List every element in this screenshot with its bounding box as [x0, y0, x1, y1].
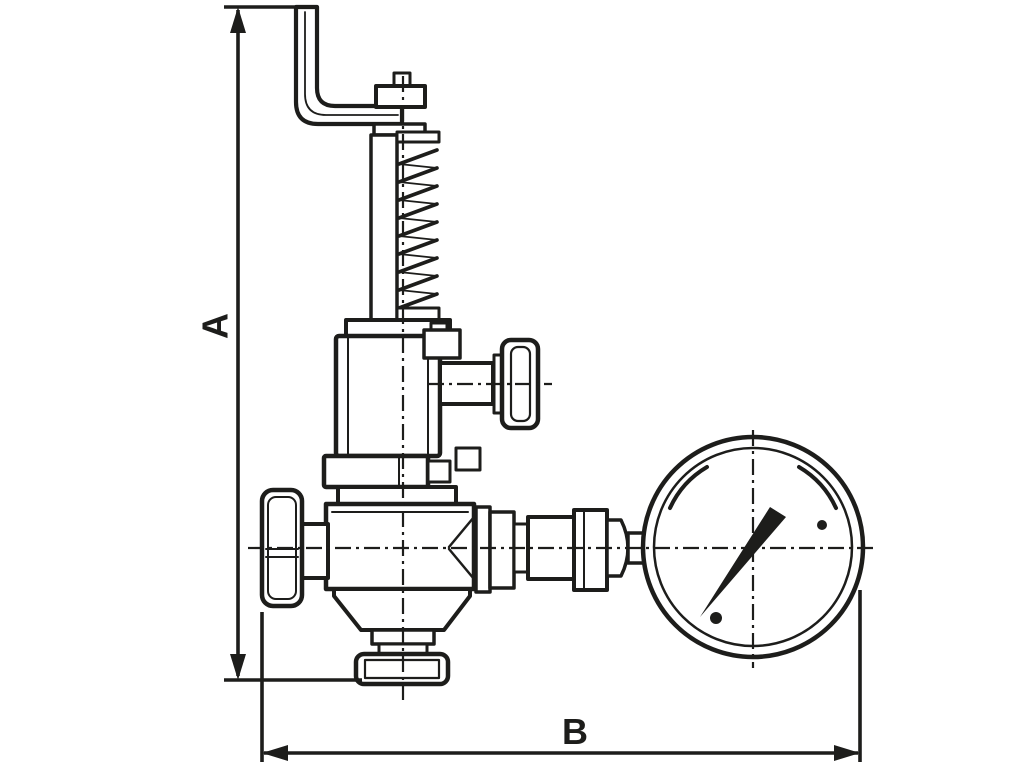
adjusting-screw-cap: [376, 86, 425, 107]
bonnet-boss: [424, 330, 460, 358]
flange-side-step: [456, 448, 480, 470]
body-block: [326, 504, 474, 589]
union-nut: [574, 510, 607, 590]
fitting-ring: [490, 512, 514, 588]
dim-a-arrow-up: [230, 7, 246, 33]
flange-right-step: [428, 461, 450, 482]
dim-b-arrow-right: [834, 745, 860, 761]
bent-lever-arm: [296, 7, 425, 135]
technical-drawing: A B: [0, 0, 1024, 766]
yoke-bar: [371, 135, 397, 325]
dim-a-label: A: [195, 313, 236, 339]
dim-a-arrow-down: [230, 654, 246, 680]
dim-b-label: B: [562, 711, 588, 752]
body-neck: [338, 487, 456, 504]
gauge-screw-dot-right: [817, 520, 827, 530]
gauge-screw-dot-left: [710, 612, 722, 624]
gauge-fittings: [476, 507, 646, 592]
drawing-canvas: A B: [0, 0, 1024, 766]
valve-body: [262, 487, 474, 684]
gland-flange: [324, 456, 428, 487]
dim-b-arrow-left: [262, 745, 288, 761]
valve-stem: [302, 524, 328, 578]
spring-coils: [399, 150, 437, 308]
spring-column: [346, 132, 450, 336]
fitting-flange-ring: [476, 507, 490, 592]
